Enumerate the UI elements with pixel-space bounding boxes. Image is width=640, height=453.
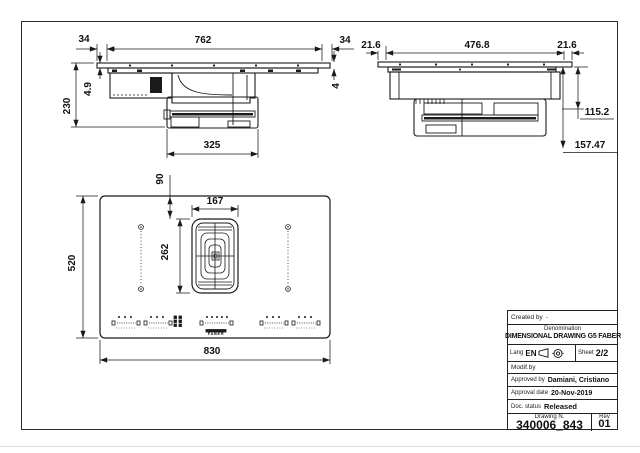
front-view-fills [112,64,301,115]
dim-plan-grille-length: 262 [161,243,171,262]
sheet-value: 2/2 [596,348,609,358]
dim-side-body-height: 115.2 [584,108,610,118]
title-block-approval-date-row: Approval date 20-Nov-2019 [508,386,617,399]
first-angle-projection-icon [538,348,550,358]
dim-front-duct-width: 325 [203,141,222,151]
plan-view-dimension-lines [76,175,330,364]
title-block-denomination-row: Denomination DIMENSIONAL DRAWING G5 FABE… [508,324,617,344]
dim-plan-grille-width: 167 [206,197,225,207]
dim-side-total-height: 157.47 [574,141,607,151]
dim-plan-width: 830 [203,347,222,357]
lang-label: Lang [510,350,523,356]
dim-front-height: 230 [63,97,73,116]
drawing-number-cell: Drawing N. 340006_843 [508,414,591,431]
sheet-label: Sheet [578,350,594,356]
doc-status-value: Released [544,402,577,411]
title-block-modif-row: Modif.by [508,361,617,373]
dim-plan-depth: 520 [68,254,78,273]
dim-side-depth: 476.8 [463,41,490,51]
title-block-drawing-number-row: Drawing N. 340006_843 Rev 01 [508,413,617,431]
created-by-value: - [546,315,548,321]
rev-cell: Rev 01 [591,414,617,431]
front-view [97,63,330,128]
dim-front-overhang-left: 34 [77,35,90,45]
page: { "views": { "front": { "overhang_left":… [0,0,640,453]
dim-side-overhang-right: 21.6 [556,41,577,51]
created-by-label: Created by [511,314,543,321]
denomination-label: Denomination [508,325,617,332]
doc-status-label: Doc. status [511,404,541,410]
faber-logo: FABER [208,332,225,336]
title-block: Created by - Denomination DIMENSIONAL DR… [507,310,618,430]
plan-view [100,196,330,338]
title-block-created-row: Created by - [508,311,617,324]
modif-by-label: Modif.by [511,364,536,371]
lang-cell: Lang EN [508,345,575,361]
approval-date-label: Approval date [511,390,548,396]
drawing-number-value: 340006_843 [508,419,591,431]
dim-front-plate-thickness: 4.9 [84,81,94,97]
dim-front-width: 762 [194,36,213,46]
title-block-status-row: Doc. status Released [508,399,617,413]
denomination-value: DIMENSIONAL DRAWING G5 FABER [504,333,622,340]
dim-front-overhang-right: 34 [338,36,351,46]
dim-plan-grille-offset: 90 [156,172,166,185]
side-view [378,62,572,136]
approval-date-value: 20-Nov-2019 [551,390,592,397]
sheet-cell: Sheet 2/2 [575,345,617,361]
title-block-approved-row: Approved by Damiani, Cristiano [508,373,617,386]
crosshair-icon [552,348,564,359]
title-block-lang-row: Lang EN Sheet 2/2 [508,344,617,361]
rev-value: 01 [592,419,617,430]
approved-by-label: Approved by [511,377,545,383]
plan-control-sliders [112,316,320,332]
lang-value: EN [525,349,536,358]
approved-by-value: Damiani, Cristiano [548,377,609,384]
dim-front-glass-thickness: 4 [332,82,342,90]
dim-side-overhang-left: 21.6 [360,41,381,51]
